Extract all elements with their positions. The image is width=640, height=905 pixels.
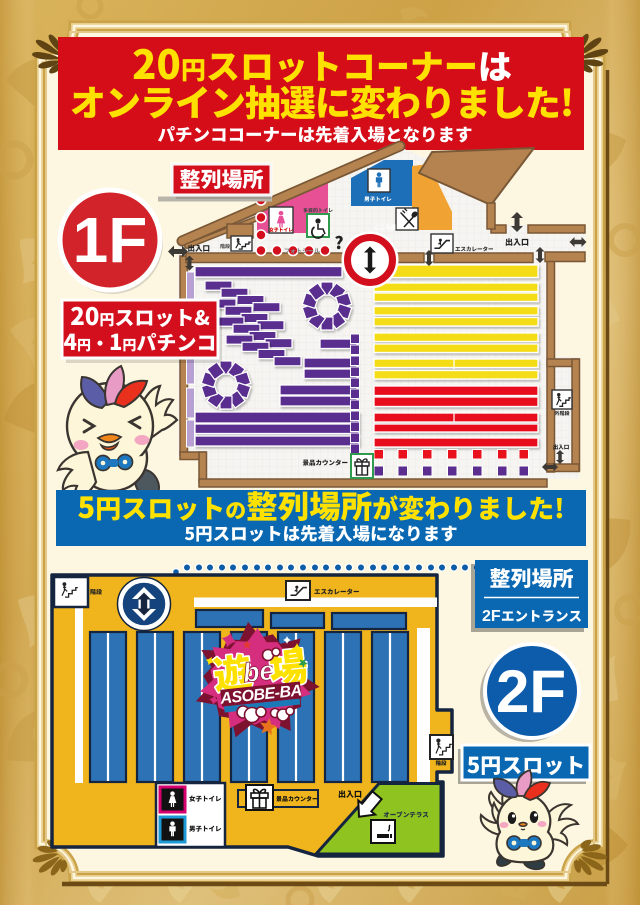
svg-text:1F: 1F	[73, 204, 148, 276]
svg-text:2F: 2F	[496, 658, 566, 725]
svg-text:2F: 2F	[482, 608, 501, 625]
